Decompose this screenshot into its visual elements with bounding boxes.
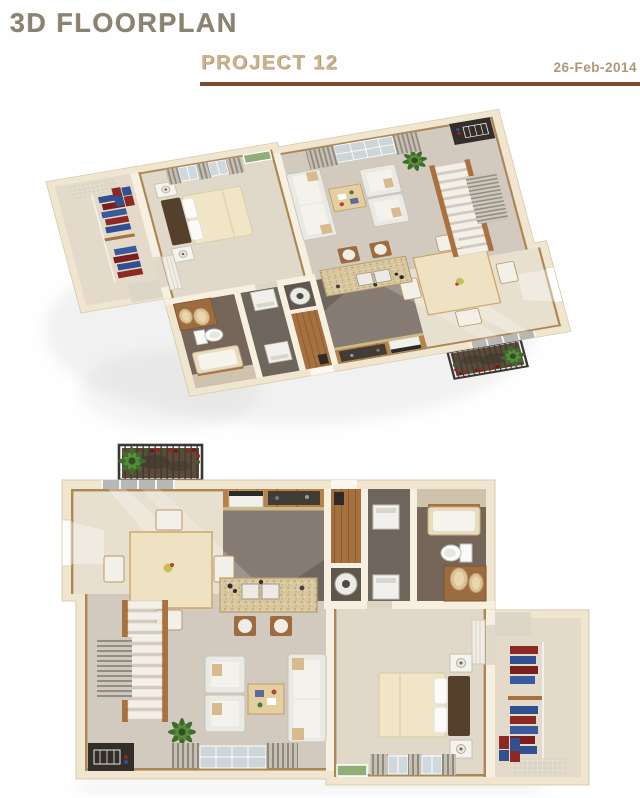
floorplan-sheet: 3D FLOORPLAN PROJECT 12 26-Feb-2014 — [0, 0, 640, 798]
floorplan-top-down-view — [62, 445, 589, 785]
floorplan-artwork — [0, 0, 640, 798]
